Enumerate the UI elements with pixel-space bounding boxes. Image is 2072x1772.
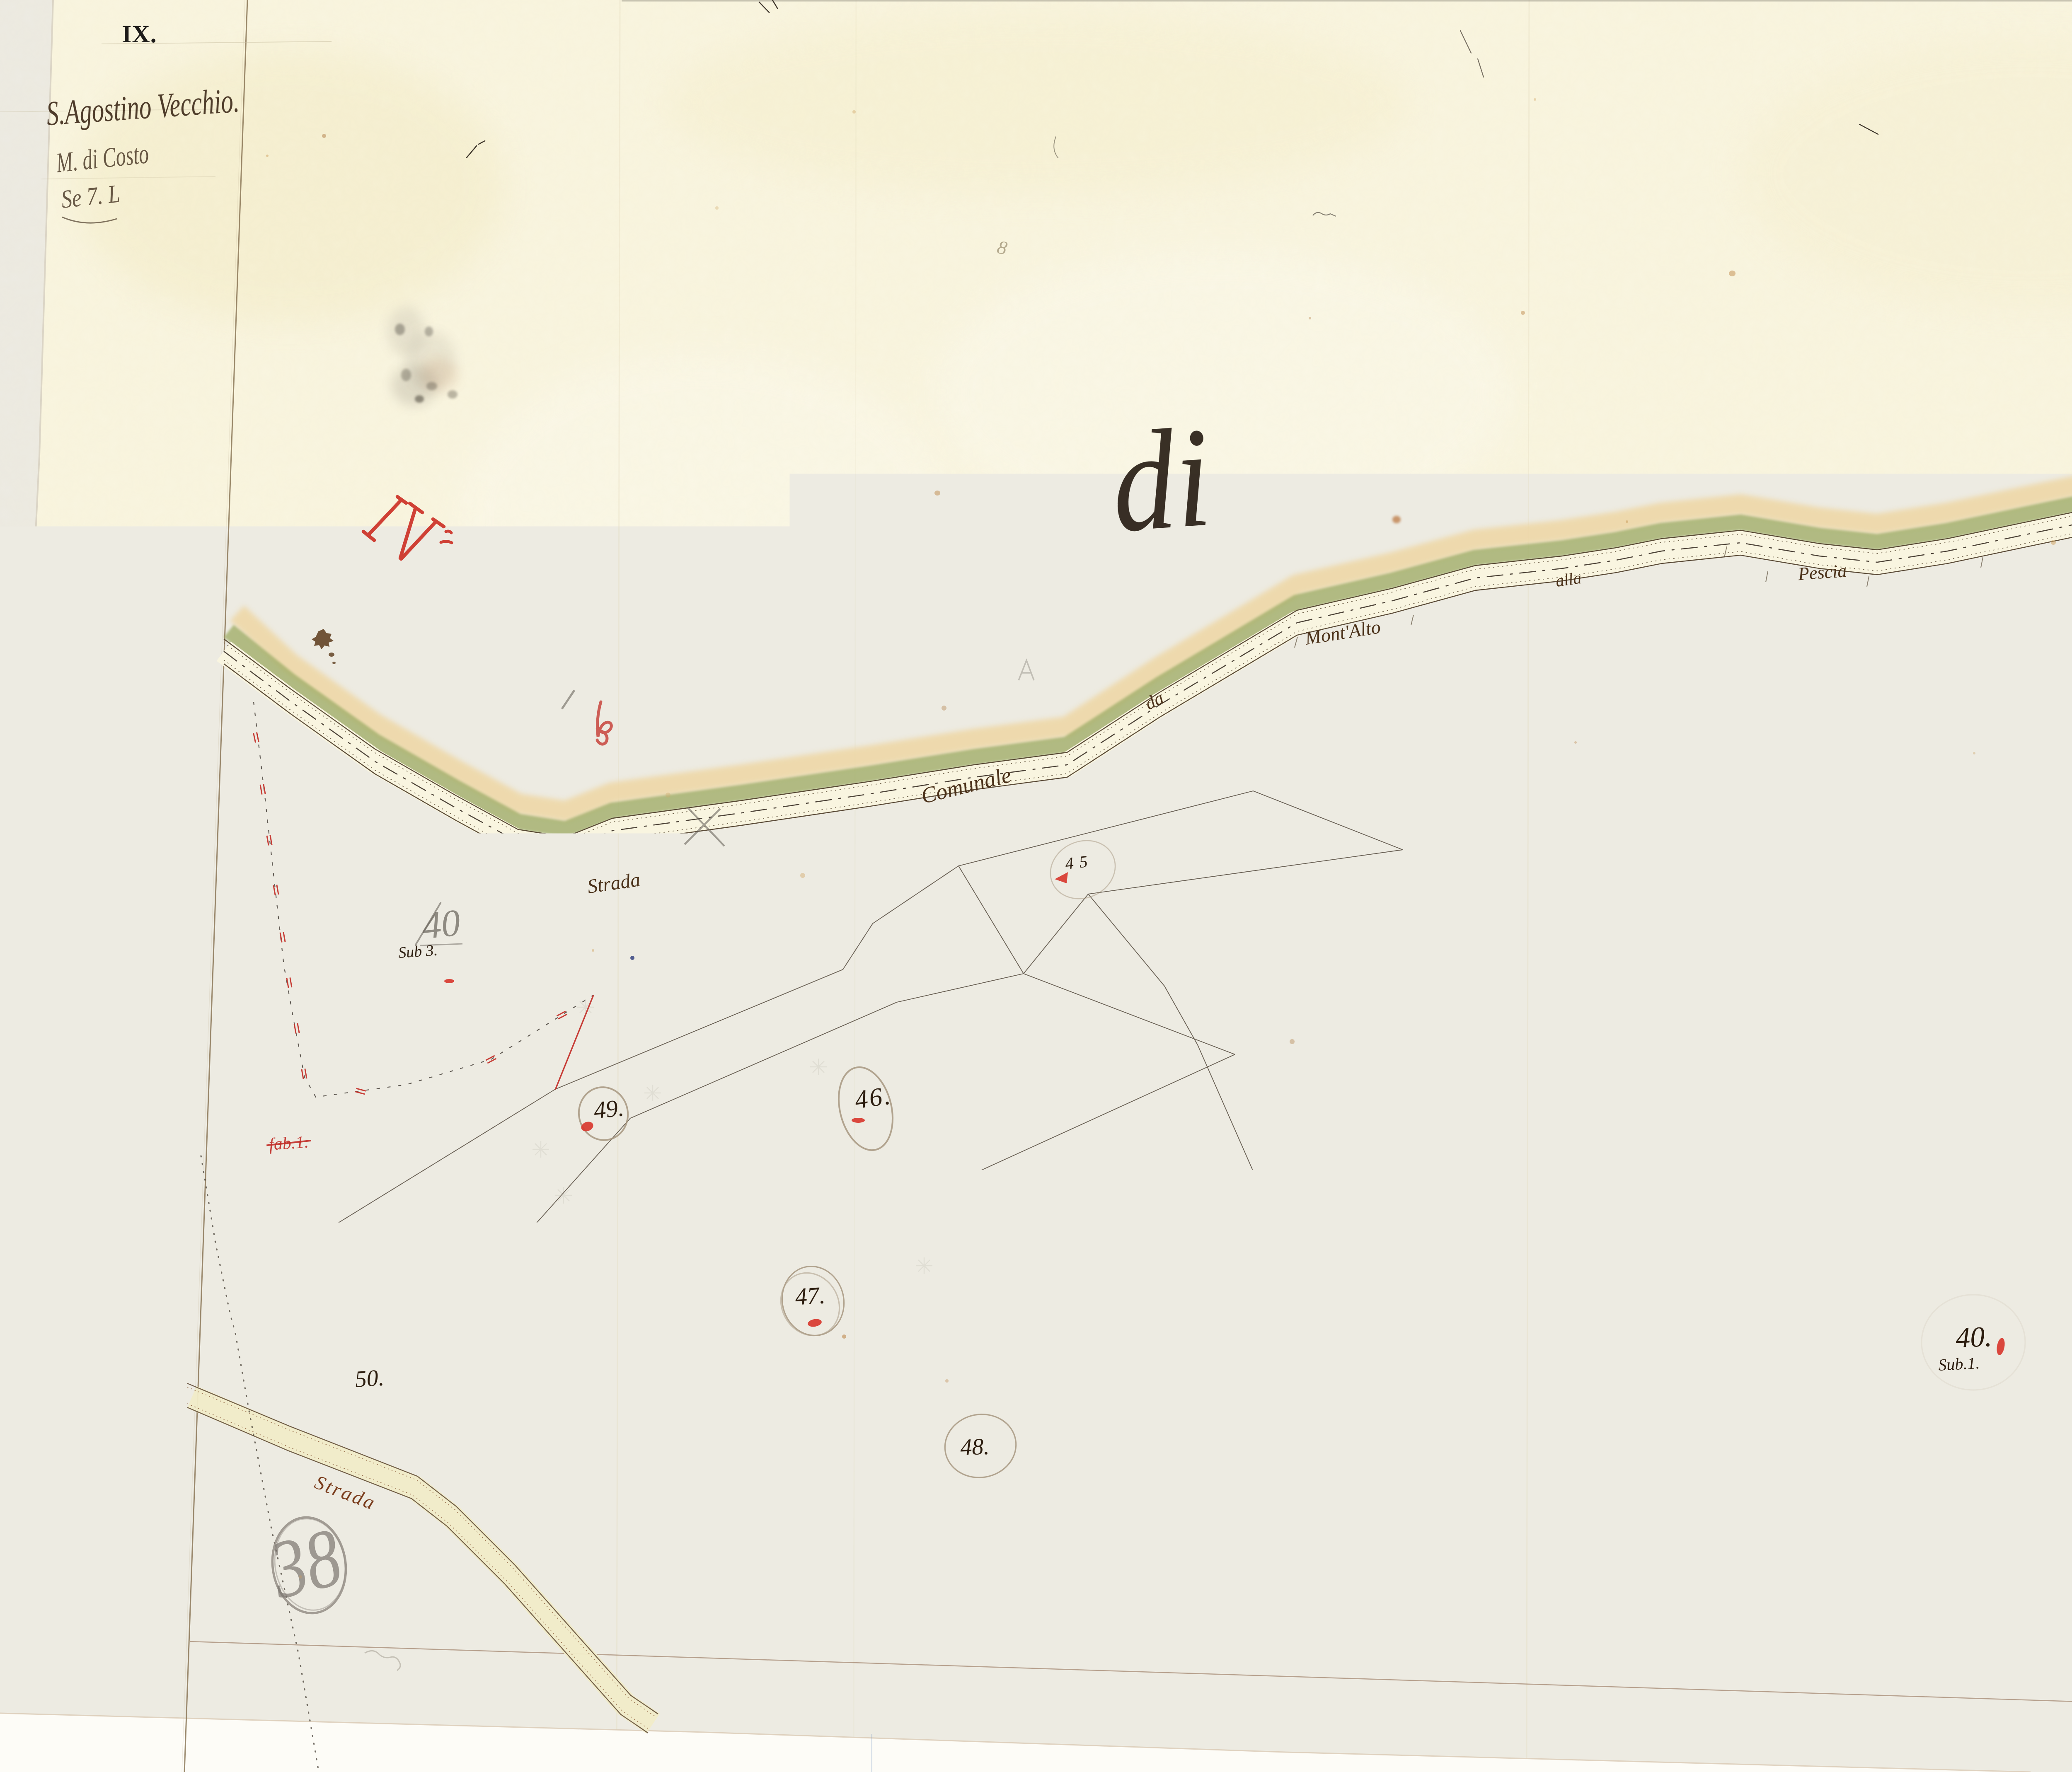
svg-text:46.: 46.: [853, 1081, 893, 1114]
svg-text:47.: 47.: [794, 1281, 826, 1310]
svg-text:Sub.1.: Sub.1.: [1938, 1354, 1980, 1374]
svg-text:48.: 48.: [960, 1434, 990, 1460]
svg-text:45: 45: [1064, 851, 1094, 873]
svg-text:40: 40: [420, 901, 462, 947]
svg-text:50.: 50.: [354, 1365, 385, 1392]
svg-text:di: di: [1107, 397, 1215, 562]
svg-text:40.: 40.: [1955, 1321, 1992, 1354]
svg-text:alla: alla: [1554, 568, 1583, 590]
svg-text:Pescia: Pescia: [1797, 561, 1847, 584]
svg-text:Sub 3.: Sub 3.: [398, 941, 438, 962]
svg-text:49.: 49.: [593, 1094, 625, 1124]
